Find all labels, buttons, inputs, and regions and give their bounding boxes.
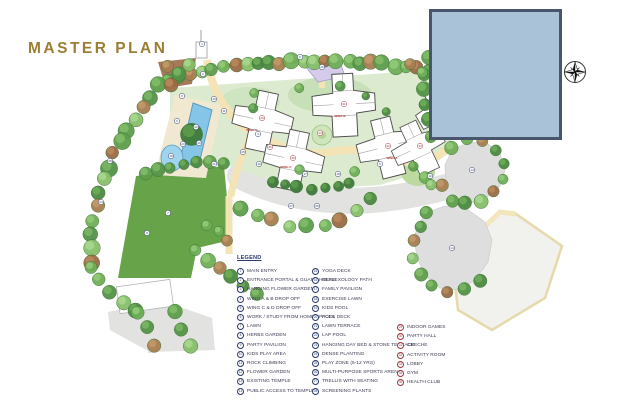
map-number-marker: 18 [335, 171, 340, 176]
tree [164, 78, 178, 92]
tree [84, 240, 101, 257]
tree [458, 282, 471, 295]
masked-overlay-panel [429, 9, 562, 140]
legend-item-label: FLOWER GARDEN [247, 370, 290, 375]
legend-item: 10KIDS PLAY AREA [237, 350, 311, 359]
tree [351, 204, 364, 217]
legend-item: 21LAWN TERRACE [312, 322, 396, 331]
legend-number-marker: 19 [312, 305, 319, 312]
wing-label: WING A [386, 156, 398, 160]
legend-number-marker: 2 [237, 277, 244, 284]
legend-item-label: REFLEXOLOGY PATH [322, 278, 372, 283]
legend-number-marker: 14 [237, 388, 244, 395]
svg-text:11: 11 [222, 109, 225, 113]
svg-text:20: 20 [197, 141, 201, 145]
legend-number-marker: 24 [312, 351, 319, 358]
legend-number-marker: 9 [237, 342, 244, 349]
legend-number-marker: 22 [312, 332, 319, 339]
legend-number-marker: 4 [237, 296, 244, 303]
tree [417, 67, 428, 78]
tree [223, 269, 237, 283]
map-number-marker: 21 [211, 161, 216, 166]
tree [264, 212, 278, 226]
map-number-marker: 15 [240, 149, 245, 154]
legend-item-label: PLAY ZONE (5-12 YRS) [322, 361, 375, 366]
tree [106, 146, 119, 159]
tree [441, 286, 453, 298]
tree [150, 77, 166, 93]
tree [436, 179, 449, 192]
svg-text:12: 12 [428, 174, 432, 178]
tree [201, 220, 212, 231]
legend-item-label: HERBS GARDEN [247, 333, 286, 338]
tree [97, 171, 111, 185]
tree [233, 201, 248, 216]
legend-item-label: WING C & D DROP OFF [247, 306, 301, 311]
legend-item-label: HEALTH CLUB [407, 380, 440, 385]
legend-number-marker: 3 [237, 286, 244, 293]
legend-number-marker: 27 [312, 378, 319, 385]
map-number-marker: 25 [314, 203, 319, 208]
legend-item-label: EXERCISE LAWN [322, 297, 362, 302]
tree [284, 221, 296, 233]
map-number-marker: 23 [180, 141, 185, 146]
legend-item: 8HERBS GARDEN [237, 331, 311, 340]
map-number-marker: 2 [200, 71, 205, 76]
legend-number-marker: 5 [237, 305, 244, 312]
svg-text:22: 22 [194, 125, 198, 129]
legend-number-marker: 30 [397, 333, 404, 340]
legend-item-label: INDOOR GAMES [407, 325, 445, 330]
legend-number-marker: 25 [312, 360, 319, 367]
tree [137, 100, 150, 113]
legend-item: 14PUBLIC ACCESS TO TEMPLE [237, 386, 311, 395]
legend-item-label: MAIN ENTRY [247, 269, 277, 274]
legend-item: 23HANGING DAY BED & STONE TERRACE [312, 341, 396, 350]
tree [218, 157, 230, 169]
master-plan-page: MASTER PLAN [0, 0, 618, 404]
tree [350, 166, 360, 176]
legend-item: 22LAP POOL [312, 331, 396, 340]
legend-column-outdoor-1: 1MAIN ENTRY2ENTRANCE PORTAL & GUARD HOUS… [237, 267, 311, 396]
legend-item: 31CRECHE [397, 341, 477, 350]
svg-text:24: 24 [99, 200, 103, 204]
legend-item: 9PARTY PAVILION [237, 341, 311, 350]
legend-item: 34GYM [397, 369, 477, 378]
legend-number-marker: 33 [397, 361, 404, 368]
map-number-marker: 4 [255, 131, 260, 136]
legend-item-label: LOBBY [407, 362, 423, 367]
map-number-marker: 3 [179, 93, 184, 98]
legend-number-marker: 28 [312, 388, 319, 395]
tree [205, 63, 218, 76]
svg-text:30: 30 [291, 156, 295, 160]
tree [151, 162, 165, 176]
tree [191, 156, 203, 168]
tree [161, 60, 173, 72]
legend-item: 2ENTRANCE PORTAL & GUARD HOUSE [237, 276, 311, 285]
svg-text:13: 13 [470, 168, 474, 172]
legend-item-label: CRECHE [407, 343, 428, 348]
tree [408, 161, 418, 171]
map-number-marker: 30 [290, 155, 295, 160]
legend-item-label: POOL DECK [322, 315, 350, 320]
svg-text:19: 19 [169, 154, 173, 158]
svg-text:16: 16 [257, 162, 261, 166]
tree [201, 253, 216, 268]
map-number-marker: 12 [427, 173, 432, 178]
legend-item: 6WORK / STUDY FROM HOME SPACES [237, 313, 311, 322]
legend-item-label: LAWN [247, 324, 261, 329]
map-number-marker: 22 [193, 124, 198, 129]
svg-text:10: 10 [212, 97, 216, 101]
legend-number-marker: 35 [397, 379, 404, 386]
tree [147, 339, 161, 353]
svg-text:26: 26 [320, 65, 324, 69]
legend-item-label: PARTY PAVILION [247, 343, 286, 348]
map-number-marker: 35 [267, 144, 272, 149]
legend-number-marker: 6 [237, 314, 244, 321]
map-number-marker: 19 [168, 153, 173, 158]
tree [92, 273, 105, 286]
legend-item-label: SCREENING PLANTS [322, 389, 371, 394]
svg-text:23: 23 [181, 142, 185, 146]
svg-text:25: 25 [315, 204, 319, 208]
legend-item-label: HANGING FLOWER GARDEN [247, 287, 314, 292]
map-number-marker: 13 [469, 167, 474, 172]
svg-text:15: 15 [241, 150, 245, 154]
legend-column-indoor: 29INDOOR GAMES30PARTY HALL31CRECHE32ACTI… [397, 323, 477, 387]
legend-item: 1MAIN ENTRY [237, 267, 311, 276]
tree [335, 81, 345, 91]
tree [446, 195, 459, 208]
tree [474, 274, 487, 287]
tree [408, 234, 420, 246]
legend-number-marker: 29 [397, 324, 404, 331]
tree [488, 186, 499, 197]
legend-number-marker: 8 [237, 332, 244, 339]
tree [290, 180, 303, 193]
legend-number-marker: 18 [312, 296, 319, 303]
tree [280, 180, 290, 190]
legend-item-label: WING A & B DROP OFF [247, 297, 300, 302]
legend-item-label: KIDS PLAY AREA [247, 352, 286, 357]
tree [217, 60, 229, 72]
map-number-marker: 33 [317, 130, 322, 135]
legend-item: 7LAWN [237, 322, 311, 331]
tree [250, 88, 259, 97]
tree [102, 285, 116, 299]
legend-number-marker: 7 [237, 323, 244, 330]
legend-number-marker: 11 [237, 360, 244, 367]
svg-text:33: 33 [318, 131, 322, 135]
map-number-marker: 26 [319, 64, 324, 69]
map-number-marker: 34 [417, 143, 422, 148]
legend-item: 27TRELLIS WITH SEATING [312, 377, 396, 386]
tree [426, 280, 437, 291]
tree [344, 178, 355, 189]
legend-item-label: LAP POOL [322, 333, 346, 338]
svg-text:35: 35 [268, 145, 272, 149]
legend-number-marker: 12 [237, 369, 244, 376]
legend-number-marker: 23 [312, 342, 319, 349]
tree [498, 174, 508, 184]
svg-text:32: 32 [386, 144, 390, 148]
legend-item: 12FLOWER GARDEN [237, 368, 311, 377]
svg-text:18: 18 [336, 172, 340, 176]
tree [179, 159, 189, 169]
svg-text:17: 17 [303, 172, 307, 176]
legend-item: 33LOBBY [397, 360, 477, 369]
legend-item: 11ROCK CLIMBING [237, 359, 311, 368]
tree [328, 54, 343, 69]
map-number-marker: 14 [449, 245, 454, 250]
legend-item-label: MULTI-PURPOSE SPORTS ARENA [322, 370, 401, 375]
legend-item-label: YOGA DECK [322, 269, 351, 274]
tree [426, 179, 436, 189]
tree [362, 92, 370, 100]
legend-number-marker: 1 [237, 268, 244, 275]
legend-item-label: ROCK CLIMBING [247, 361, 286, 366]
tree [332, 213, 347, 228]
tree [164, 163, 175, 174]
tree [474, 194, 488, 208]
legend: LEGEND 1MAIN ENTRY2ENTRANCE PORTAL & GUA… [237, 255, 487, 266]
legend-item: 17FAMILY PAVILION [312, 285, 396, 294]
tree [415, 221, 427, 233]
legend-item: 26MULTI-PURPOSE SPORTS ARENA [312, 368, 396, 377]
legend-item: 13EXISTING TEMPLE [237, 377, 311, 386]
legend-item-label: PUBLIC ACCESS TO TEMPLE [247, 389, 315, 394]
tree [183, 58, 196, 71]
map-number-marker: 10 [211, 96, 216, 101]
tree [499, 158, 510, 169]
tree [374, 55, 390, 71]
tree [319, 219, 331, 231]
tree [83, 227, 98, 242]
tree [306, 184, 317, 195]
tree [91, 186, 105, 200]
legend-item-label: TRELLIS WITH SEATING [322, 379, 378, 384]
compass-rose-icon [559, 56, 591, 88]
legend-item-label: ACTIVITY ROOM [407, 353, 445, 358]
legend-item: 29INDOOR GAMES [397, 323, 477, 332]
legend-item: 25PLAY ZONE (5-12 YRS) [312, 359, 396, 368]
legend-number-marker: 26 [312, 369, 319, 376]
legend-number-marker: 34 [397, 370, 404, 377]
map-number-marker: 20 [196, 140, 201, 145]
map-number-marker: 28 [107, 158, 112, 163]
legend-number-marker: 17 [312, 286, 319, 293]
legend-number-marker: 32 [397, 352, 404, 359]
svg-text:29: 29 [260, 116, 264, 120]
svg-text:28: 28 [108, 159, 112, 163]
legend-item: 28SCREENING PLANTS [312, 386, 396, 395]
legend-item: 16REFLEXOLOGY PATH [312, 276, 396, 285]
legend-item: 35HEALTH CLUB [397, 378, 477, 387]
legend-item: 20POOL DECK [312, 313, 396, 322]
tree [85, 261, 97, 273]
tree [168, 304, 183, 319]
map-number-marker: 1 [199, 41, 204, 46]
wing-label: WING B [334, 114, 346, 118]
tree [445, 141, 459, 155]
legend-number-marker: 20 [312, 314, 319, 321]
tree [295, 84, 304, 93]
tree [321, 183, 331, 193]
legend-item-label: FAMILY PAVILION [322, 287, 362, 292]
legend-item: 30PARTY HALL [397, 332, 477, 341]
tree [131, 306, 144, 319]
svg-text:31: 31 [342, 102, 346, 106]
legend-number-marker: 16 [312, 277, 319, 284]
tree [248, 104, 258, 114]
tree [221, 235, 232, 246]
wing-label: WING C [280, 165, 292, 169]
legend-heading: LEGEND [237, 255, 487, 261]
tree [141, 320, 154, 333]
map-number-marker: 31 [341, 101, 346, 106]
tree [414, 268, 427, 281]
tree [490, 145, 501, 156]
tree [139, 167, 152, 180]
tree [267, 176, 278, 187]
map-number-marker: 5 [377, 161, 382, 166]
map-number-marker: 17 [302, 171, 307, 176]
tree [174, 323, 188, 337]
legend-item: 4WING A & B DROP OFF [237, 295, 311, 304]
tree [114, 133, 131, 150]
map-number-marker: 27 [288, 203, 293, 208]
tree [404, 59, 415, 70]
legend-number-marker: 15 [312, 268, 319, 275]
map-number-marker: 29 [259, 115, 264, 120]
legend-item: 18EXERCISE LAWN [312, 295, 396, 304]
map-number-marker: 16 [256, 161, 261, 166]
map-number-marker: 11 [221, 108, 226, 113]
svg-text:34: 34 [418, 144, 422, 148]
map-number-marker: 9 [174, 118, 179, 123]
tree [364, 192, 377, 205]
svg-text:21: 21 [212, 162, 216, 166]
legend-item-label: LAWN TERRACE [322, 324, 360, 329]
tree [382, 108, 390, 116]
legend-number-marker: 21 [312, 323, 319, 330]
map-number-marker: 8 [144, 230, 149, 235]
tree [298, 218, 313, 233]
legend-item-label: PARTY HALL [407, 334, 436, 339]
tree [420, 206, 433, 219]
tree [458, 196, 472, 210]
map-number-marker: 32 [385, 143, 390, 148]
legend-column-outdoor-2: 15YOGA DECK16REFLEXOLOGY PATH17FAMILY PA… [312, 267, 396, 396]
map-number-marker: 24 [98, 199, 103, 204]
map-number-marker: 7 [165, 210, 170, 215]
legend-item-label: KIDS POOL [322, 306, 348, 311]
legend-item: 32ACTIVITY ROOM [397, 351, 477, 360]
tree [251, 209, 264, 222]
svg-text:14: 14 [450, 246, 454, 250]
tree [333, 181, 343, 191]
legend-item: 3HANGING FLOWER GARDEN [237, 285, 311, 294]
legend-number-marker: 13 [237, 378, 244, 385]
svg-text:27: 27 [289, 204, 293, 208]
legend-item-label: DENSE PLANTING [322, 352, 365, 357]
legend-number-marker: 31 [397, 342, 404, 349]
legend-item-label: EXISTING TEMPLE [247, 379, 291, 384]
legend-item: 19KIDS POOL [312, 304, 396, 313]
tree [183, 339, 198, 354]
tree [283, 53, 299, 69]
legend-item-label: GYM [407, 371, 418, 376]
tree [214, 226, 224, 236]
legend-item: 5WING C & D DROP OFF [237, 304, 311, 313]
tree [86, 214, 99, 227]
legend-number-marker: 10 [237, 351, 244, 358]
legend-item: 24DENSE PLANTING [312, 350, 396, 359]
map-number-marker: 6 [297, 54, 302, 59]
tree [190, 244, 201, 255]
legend-item: 15YOGA DECK [312, 267, 396, 276]
